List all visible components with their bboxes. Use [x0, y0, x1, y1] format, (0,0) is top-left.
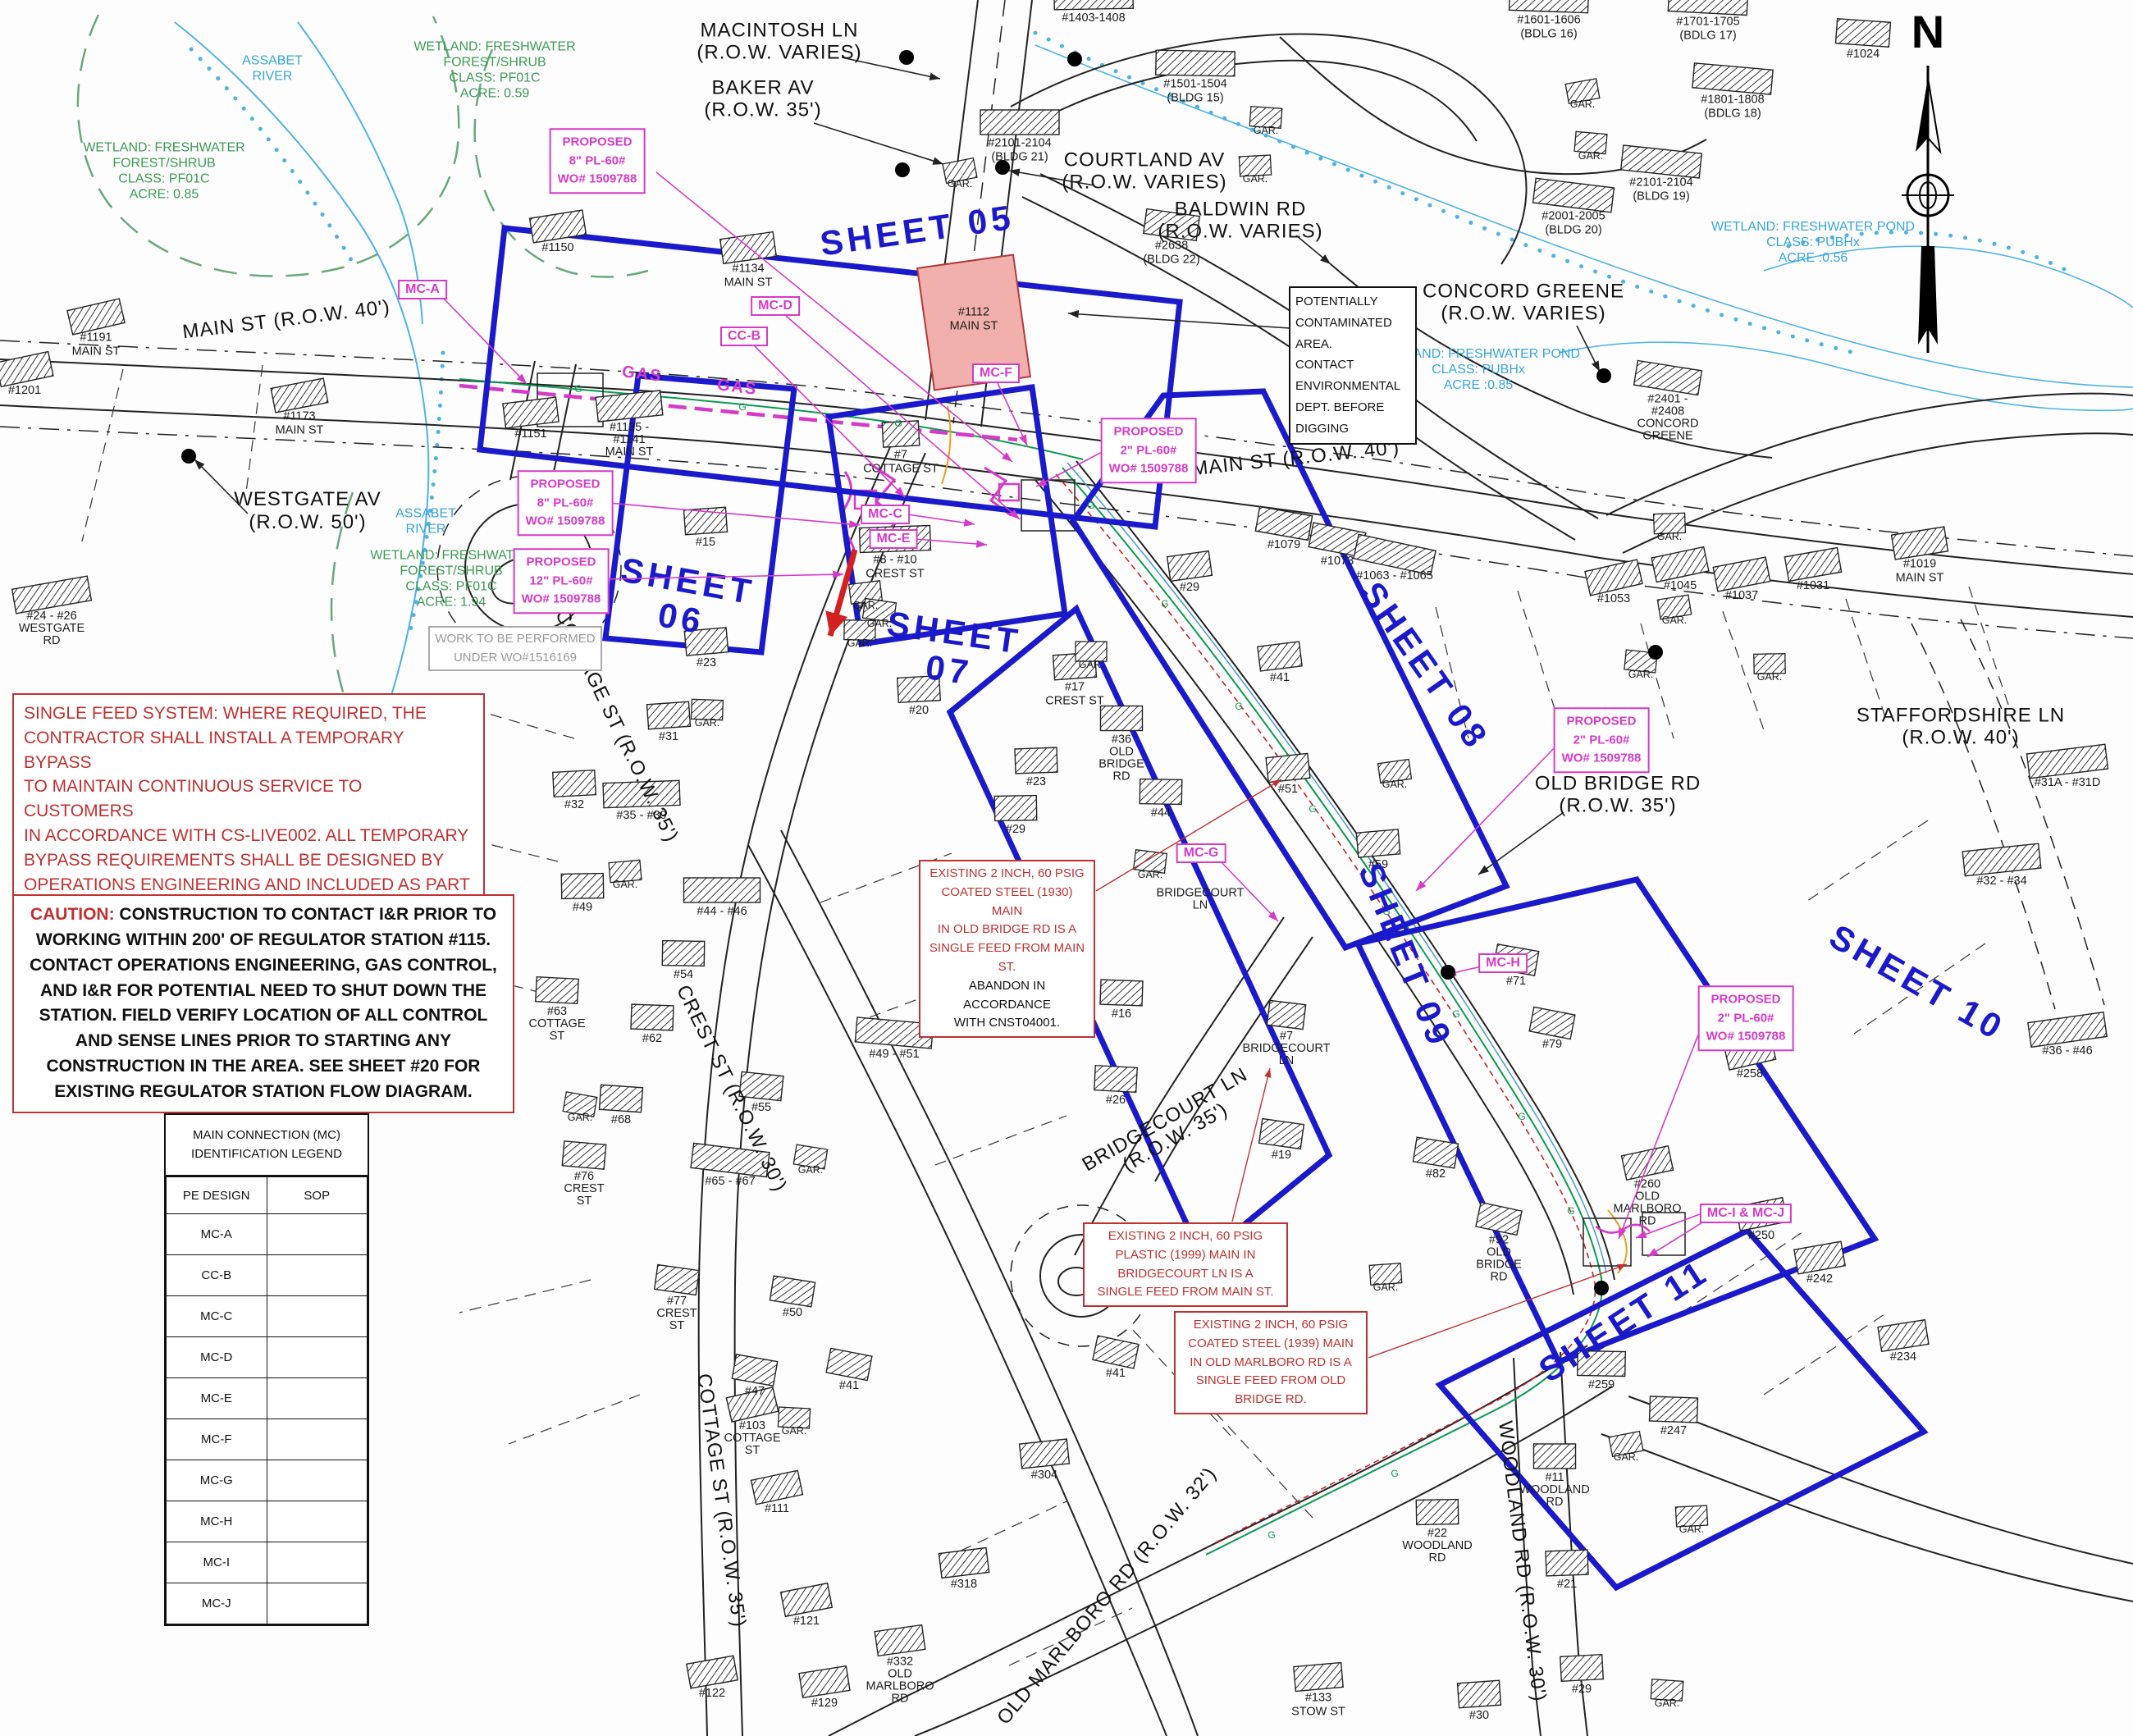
- building: [1476, 1203, 1522, 1236]
- house-labels-text: #7BRIDGECOURTLN: [1243, 1030, 1331, 1067]
- building: [2027, 744, 2108, 778]
- gar-labels-text: GAR.: [1254, 125, 1279, 136]
- street-labels-text: STAFFORDSHIRE LN(R.O.W. 40'): [1857, 705, 2065, 749]
- house-labels-text: #1031: [1797, 579, 1829, 592]
- house-labels-text: #111: [765, 1502, 789, 1515]
- legend-pe-design-cell: MC-A: [167, 1214, 267, 1255]
- legend-row: MC-I: [167, 1542, 368, 1583]
- house-labels-text: #54: [674, 968, 693, 981]
- building: [1560, 1655, 1604, 1682]
- street-labels-text: OLD MARLBORO RD (R.O.W. 32'): [993, 1463, 1221, 1729]
- mc-callout: MC-H: [1478, 953, 1528, 973]
- legend-row: MC-C: [167, 1296, 368, 1337]
- legend-pe-design-cell: MC-J: [167, 1583, 267, 1624]
- mc-callout: CC-B: [720, 327, 768, 346]
- misc-labels-text: GAS: [716, 376, 759, 399]
- leader-line: [1096, 779, 1281, 891]
- legend-sop-cell: [267, 1419, 368, 1460]
- building: [561, 874, 604, 899]
- house-labels-text: #234: [1890, 1350, 1916, 1364]
- leader-line: [1232, 1068, 1270, 1222]
- street-labels-text: CONCORD GREENE(R.O.W. VARIES): [1423, 281, 1624, 325]
- building: [647, 701, 691, 729]
- house-labels-text: #29: [1180, 581, 1199, 594]
- house-labels-text: #21: [1557, 1578, 1577, 1591]
- wetland-labels-text: WETLAND: FRESHWATERFOREST/SHRUBCLASS: PF…: [83, 141, 244, 202]
- house-labels-text: #65 - #67: [705, 1175, 755, 1188]
- house-labels-text: #19: [1272, 1149, 1291, 1162]
- proposed-main-callout: PROPOSED 2" PL-60# WO# 1509788: [1698, 985, 1794, 1051]
- building: [1634, 361, 1702, 395]
- gar-labels-text: GAR.: [1570, 98, 1596, 110]
- house-labels-text: BRIDGECOURTLN: [1157, 887, 1245, 912]
- building: [1140, 779, 1182, 805]
- legend-sop-cell: [267, 1501, 368, 1542]
- gar-labels-text: GAR.: [798, 1164, 824, 1176]
- misc-labels-text: G: [1452, 1008, 1459, 1020]
- junction-dot: [1648, 645, 1663, 660]
- building: [1167, 551, 1213, 582]
- house-labels-text: #1403-1408: [1062, 11, 1125, 25]
- sheet-labels-text: SHEET 08: [1353, 575, 1496, 757]
- work-order-note: WORK TO BE PERFORMED UNDER WO#1516169: [428, 626, 602, 671]
- house-labels-text: #304: [1031, 1469, 1057, 1482]
- leader-line: [609, 503, 860, 525]
- sheet-labels-text: SHEET06: [611, 550, 758, 649]
- legend-sop-cell: [267, 1378, 368, 1419]
- house-labels-text: #36 - #46: [2042, 1044, 2092, 1058]
- building: [1093, 1336, 1139, 1368]
- building: [1668, 0, 1747, 15]
- house-labels-text: #1024: [1847, 48, 1880, 61]
- existing-old-bridge-note: EXISTING 2 INCH, 60 PSIG COATED STEEL (1…: [919, 860, 1095, 1038]
- house-labels-text: #1019MAIN ST: [1896, 558, 1944, 585]
- house-labels-text: #31: [659, 730, 678, 743]
- gar-labels-text: GAR.: [948, 178, 973, 190]
- mc-callout: MC-C: [861, 505, 910, 524]
- misc-labels-text: G: [1267, 1529, 1275, 1541]
- building: [1015, 747, 1057, 774]
- building: [67, 299, 125, 335]
- house-labels-text: #79: [1542, 1038, 1562, 1051]
- house-labels-text: #16: [1112, 1007, 1131, 1021]
- junction-dot: [1067, 52, 1082, 66]
- house-labels-text: #1150: [541, 241, 573, 254]
- street-labels-text: WESTGATE AV(R.O.W. 50'): [234, 488, 381, 533]
- legend-pe-design-cell: MC-E: [167, 1378, 267, 1419]
- legend-row: MC-G: [167, 1460, 368, 1501]
- gar-labels-text: GAR.: [568, 1112, 593, 1123]
- proposed-main-callout: PROPOSED 8" PL-60# WO# 1509788: [518, 470, 614, 536]
- house-labels-text: #2101-2104(BLDG 19): [1629, 176, 1692, 203]
- legend-pe-design-cell: MC-C: [167, 1296, 267, 1337]
- building: [799, 1666, 850, 1698]
- legend-sop-cell: [267, 1214, 368, 1255]
- existing-old-bridge-red: EXISTING 2 INCH, 60 PSIG COATED STEEL (1…: [925, 865, 1089, 977]
- building: [1100, 980, 1143, 1006]
- misc-labels-text: G: [1518, 1111, 1525, 1122]
- misc-labels-text: GAS: [621, 363, 664, 386]
- street-labels-text: BALDWIN RD(R.O.W. VARIES): [1158, 199, 1322, 243]
- building: [1356, 829, 1400, 857]
- building: [826, 1348, 872, 1380]
- legend-col-sop: SOP: [267, 1177, 368, 1214]
- house-labels-text: #11WOODLANDRD: [1519, 1471, 1589, 1509]
- leader-line: [842, 57, 940, 79]
- building: [2028, 1012, 2107, 1048]
- contaminated-area-note: POTENTIALLY CONTAMINATED AREA. CONTACT E…: [1289, 286, 1417, 445]
- building: [751, 1470, 803, 1504]
- gar-labels-text: GAR.: [1373, 1281, 1399, 1293]
- building: [536, 977, 579, 1004]
- house-labels-text: #32 - #34: [1976, 875, 2026, 888]
- house-labels-text: #76CRESTST: [564, 1170, 604, 1208]
- misc-labels-text: G: [738, 401, 746, 413]
- building: [1621, 145, 1702, 178]
- house-labels-text: #1201: [8, 384, 41, 397]
- street-labels-text: COURTLAND AV(R.O.W. VARIES): [1062, 149, 1226, 194]
- building: [781, 1583, 833, 1617]
- proposed-main-callout: PROPOSED 2" PL-60# WO# 1509788: [1554, 707, 1650, 773]
- gar-labels-text: GAR.: [1243, 173, 1268, 185]
- legend-title: MAIN CONNECTION (MC) IDENTIFICATION LEGE…: [166, 1115, 368, 1176]
- gar-labels-text: GAR.: [1655, 1697, 1680, 1709]
- gar-labels-text: GAR.: [1614, 1451, 1639, 1463]
- building: [600, 1085, 643, 1112]
- house-labels-text: #2101-2104(BLDG 21): [988, 137, 1051, 164]
- building: [1533, 178, 1615, 212]
- misc-labels-text: N: [1911, 6, 1944, 57]
- building: [12, 576, 92, 614]
- existing-bridgecourt-note: EXISTING 2 INCH, 60 PSIG PLASTIC (1999) …: [1083, 1222, 1288, 1307]
- wetland-labels-text: WETLAND: FRESHWATERFOREST/SHRUBCLASS: PF…: [370, 549, 532, 610]
- house-labels-text: #44 - #46: [697, 905, 747, 918]
- building: [1529, 1007, 1575, 1039]
- gar-labels-text: GAR.: [847, 637, 873, 649]
- gar-labels-text: GAR.: [613, 879, 638, 890]
- gar-labels-text: GAR.: [1628, 669, 1654, 680]
- house-labels-text: #41: [1106, 1367, 1126, 1380]
- building: [503, 397, 559, 428]
- house-labels-text: #1173MAIN ST: [276, 410, 324, 437]
- house-labels-text: #258: [1737, 1067, 1763, 1080]
- legend-row: MC-D: [167, 1337, 368, 1378]
- street-labels-text: MACINTOSH LN(R.O.W. VARIES): [697, 20, 861, 64]
- leader-line: [1478, 812, 1564, 875]
- building: [770, 1276, 815, 1307]
- sheet-labels-text: SHEET 05: [818, 198, 1017, 263]
- existing-old-marlboro-note: EXISTING 2 INCH, 60 PSIG COATED STEEL (1…: [1174, 1311, 1368, 1414]
- house-labels-text: #24 - #26WESTGATERD: [19, 610, 85, 647]
- house-labels-text: #247: [1660, 1424, 1687, 1437]
- misc-labels-text: G: [894, 418, 902, 429]
- house-labels-text: #1151: [514, 427, 546, 441]
- house-labels-text: #1501-1504(BLDG 15): [1163, 78, 1226, 105]
- junction-dot: [995, 160, 1010, 175]
- building: [271, 378, 328, 413]
- building: [655, 1265, 700, 1295]
- legend-sop-cell: [267, 1460, 368, 1501]
- junction-dot: [1594, 1281, 1609, 1295]
- house-labels-text: #77CRESTST: [656, 1295, 697, 1332]
- legend-pe-design-cell: MC-D: [167, 1337, 267, 1378]
- gar-labels-text: GAR.: [1138, 869, 1163, 880]
- house-labels-text: #15: [696, 536, 715, 549]
- building: [1054, 0, 1134, 10]
- junction-dot: [899, 50, 914, 65]
- legend-sop-cell: [267, 1337, 368, 1378]
- building: [1020, 1439, 1070, 1469]
- gar-labels-text: GAR.: [1578, 150, 1604, 162]
- leader-line: [194, 459, 248, 514]
- building: [1622, 1146, 1674, 1180]
- house-labels-text: #1063 - #1065: [1356, 569, 1433, 582]
- legend-pe-design-cell: MC-G: [167, 1460, 267, 1501]
- building: [0, 352, 53, 387]
- house-labels-text: #122: [699, 1687, 725, 1700]
- legend-pe-design-cell: MC-H: [167, 1501, 267, 1542]
- house-labels-text: #7COTTAGE ST: [863, 449, 939, 476]
- gar-labels-text: GAR.: [853, 600, 879, 611]
- house-labels-text: #17CREST ST: [1045, 681, 1104, 708]
- house-labels-text: #250: [1748, 1229, 1774, 1242]
- house-labels-text: #129: [811, 1697, 838, 1710]
- building: [1585, 560, 1642, 596]
- house-labels-text: #23: [1026, 775, 1046, 788]
- misc-labels-text: G: [1391, 1468, 1398, 1479]
- legend-sop-cell: [267, 1255, 368, 1296]
- leader-line: [1647, 1220, 1706, 1257]
- house-labels-text: #1801-1808(BDLG 18): [1701, 94, 1764, 121]
- house-labels-text: #29: [1572, 1683, 1592, 1696]
- proposed-main-callout: PROPOSED 8" PL-60# WO# 1509788: [550, 128, 646, 194]
- house-labels-text: #8 - #10CREST ST: [866, 554, 925, 581]
- street-labels-text: MAIN ST (R.O.W. 40'): [181, 296, 391, 344]
- mc-callout: MC-E: [870, 529, 918, 549]
- legend-pe-design-cell: MC-I: [167, 1542, 267, 1583]
- gar-labels-text: GAR.: [1757, 671, 1783, 683]
- house-labels-text: #26: [1106, 1094, 1126, 1107]
- legend-row: MC-E: [167, 1378, 368, 1419]
- house-labels-text: #63COTTAGEST: [528, 1005, 585, 1043]
- building: [1534, 1444, 1576, 1469]
- north-arrow: [1902, 66, 1954, 353]
- house-labels-text: #1079: [1267, 538, 1300, 551]
- house-labels-text: #1601-1606(BDLG 16): [1517, 14, 1580, 41]
- sheet-labels-text: SHEET 10: [1823, 916, 2012, 1048]
- house-labels-text: #30: [1469, 1709, 1489, 1722]
- house-labels-text: #32: [564, 798, 584, 811]
- gas-work-cluster: [537, 373, 1685, 1266]
- wetland-labels-text: WETLAND: FRESHWATERFOREST/SHRUBCLASS: PF…: [413, 40, 575, 101]
- building: [1649, 1396, 1697, 1423]
- building: [1546, 1550, 1588, 1576]
- legend-row: CC-B: [167, 1255, 368, 1296]
- legend-table: PE DESIGN SOP MC-ACC-BMC-CMC-DMC-EMC-FMC…: [166, 1176, 368, 1624]
- building: [687, 1656, 738, 1688]
- building: [553, 770, 596, 797]
- mc-callout: MC-I & MC-J: [1700, 1204, 1792, 1223]
- house-labels-text: #1134MAIN ST: [724, 263, 773, 290]
- house-labels-text: #49: [573, 901, 592, 914]
- gar-labels-text: GAR.: [1662, 614, 1688, 626]
- junction-dot: [895, 162, 910, 177]
- gar-labels-text: GAR.: [782, 1425, 807, 1437]
- building: [939, 1548, 989, 1578]
- house-labels-text: #1073: [1321, 555, 1354, 568]
- building: [1258, 642, 1302, 671]
- building: [980, 110, 1059, 135]
- building: [1692, 63, 1773, 94]
- building: [1794, 1241, 1845, 1274]
- house-labels-text: #332OLDMARLBORORD: [866, 1656, 934, 1706]
- house-labels-text: #2401 -#2408CONCORDGREENE: [1637, 393, 1699, 443]
- legend-pe-design-cell: CC-B: [167, 1255, 267, 1296]
- building: [1962, 843, 2041, 876]
- misc-labels-text: G: [1161, 598, 1168, 610]
- proposed-main-callout: PROPOSED 2" PL-60# WO# 1509788: [1101, 418, 1197, 483]
- house-labels-text: #31A - #31D: [2035, 776, 2101, 789]
- legend-row: MC-F: [167, 1419, 368, 1460]
- house-labels-text: #29: [1006, 823, 1025, 836]
- building: [662, 941, 705, 966]
- mc-identification-legend: MAIN CONNECTION (MC) IDENTIFICATION LEGE…: [164, 1113, 369, 1626]
- legend-sop-cell: [267, 1583, 368, 1624]
- building: [1259, 1119, 1304, 1149]
- building: [732, 1355, 777, 1386]
- existing-old-bridge-black: ABANDON IN ACCORDANCE WITH CNST04001.: [925, 977, 1089, 1033]
- building: [1878, 1320, 1929, 1352]
- junction-dot: [1441, 965, 1455, 980]
- legend-pe-design-cell: MC-F: [167, 1419, 267, 1460]
- mc-callout: MC-F: [972, 363, 1020, 383]
- caution-note: CAUTION: CONSTRUCTION TO CONTACT I&R PRI…: [12, 894, 514, 1113]
- house-labels-text: #71: [1506, 975, 1526, 988]
- house-labels-text: #82: [1426, 1167, 1446, 1181]
- house-labels-text: #51: [1278, 783, 1298, 796]
- legend-col-pe-design: PE DESIGN: [167, 1177, 267, 1214]
- mc-callout: MC-D: [751, 296, 800, 316]
- house-labels-text: #259: [1588, 1378, 1615, 1391]
- building: [875, 1625, 925, 1656]
- house-labels-text: #1701-1705(BDLG 17): [1676, 16, 1739, 43]
- house-labels-text: #41: [839, 1379, 859, 1392]
- gar-labels-text: GAR.: [1679, 1524, 1705, 1535]
- house-labels-text: #62: [642, 1032, 662, 1045]
- building: [1267, 1000, 1305, 1029]
- proposed-main-callout: PROPOSED 12" PL-60# WO# 1509788: [514, 548, 610, 614]
- misc-labels-text: G: [574, 383, 582, 395]
- building: [1651, 547, 1709, 582]
- gar-labels-text: GAR.: [1382, 779, 1408, 790]
- building: [1101, 706, 1143, 731]
- mc-callout: MC-A: [398, 280, 447, 299]
- building: [1266, 753, 1310, 782]
- misc-labels-text: G: [1235, 701, 1242, 712]
- junction-dot: [1596, 368, 1611, 383]
- house-labels-text: #260OLDMARLBORORD: [1614, 1178, 1682, 1228]
- house-labels-text: #103COTTAGEST: [724, 1419, 780, 1457]
- house-labels-text: #1045: [1664, 579, 1697, 592]
- leader-line: [907, 514, 975, 524]
- house-labels-text: #68: [611, 1113, 631, 1126]
- building: [1458, 1680, 1501, 1707]
- house-labels-text: #1053: [1597, 592, 1630, 605]
- house-labels-text: #20: [909, 704, 929, 717]
- misc-labels-text: G: [1567, 1205, 1574, 1217]
- caution-text: CONSTRUCTION TO CONTACT I&R PRIOR TO WOR…: [30, 905, 497, 1101]
- misc-labels-text: G: [1087, 500, 1094, 511]
- sheet-labels-text: SHEET 09: [1351, 857, 1460, 1053]
- house-labels-text: #23: [697, 656, 716, 669]
- building: [1784, 548, 1841, 582]
- building: [1156, 50, 1235, 76]
- misc-labels-text: G: [1309, 803, 1316, 815]
- house-labels-text: #22WOODLANDRD: [1402, 1527, 1472, 1565]
- construction-key-map: GAR.GAR.GAR.GAR.GAR.GAR.GAR.GAR.GAR.GAR.…: [0, 0, 2133, 1736]
- house-labels-text: #47: [745, 1385, 765, 1398]
- house-labels-text: #2638(BLDG 22): [1143, 240, 1199, 267]
- building: [1416, 1500, 1459, 1525]
- building: [596, 391, 663, 422]
- building: [1094, 1066, 1138, 1093]
- house-labels-text: #1037: [1725, 589, 1758, 602]
- street-labels-text: BAKER AV(R.O.W. 35'): [704, 77, 821, 121]
- gar-labels-text: GAR.: [1079, 659, 1104, 670]
- leader-line: [814, 123, 943, 164]
- legend-row: MC-H: [167, 1501, 368, 1542]
- leader-line: [443, 298, 527, 384]
- house-labels-text: #1135 -#1141MAIN ST: [605, 421, 654, 459]
- house-labels-text: #121: [793, 1615, 820, 1628]
- building: [562, 1141, 605, 1169]
- house-labels-text: #44: [1151, 806, 1171, 820]
- building: [684, 878, 760, 902]
- legend-row: MC-A: [167, 1214, 368, 1255]
- legend-row: MC-J: [167, 1583, 368, 1624]
- caution-prefix: CAUTION:: [30, 905, 115, 924]
- junction-dot: [181, 449, 196, 464]
- wetland-labels-text: ASSABETRIVER: [242, 54, 303, 84]
- wetland-labels-text: WETLAND: FRESHWATER PONDCLASS: PUBHxACRE…: [1711, 220, 1915, 265]
- gar-labels-text: GAR.: [695, 717, 720, 729]
- house-labels-text: #1191MAIN ST: [72, 331, 121, 359]
- building: [631, 1004, 674, 1030]
- building: [1510, 0, 1589, 13]
- gar-labels-text: GAR.: [1657, 531, 1683, 542]
- house-labels-text: #2001-2005(BLDG 20): [1542, 210, 1605, 237]
- mc-callout: MC-G: [1176, 843, 1226, 863]
- building: [1713, 557, 1770, 592]
- house-labels-text: #49 - #51: [869, 1048, 919, 1061]
- building: [1836, 19, 1891, 47]
- house-labels-text: #318: [951, 1578, 977, 1591]
- legend-sop-cell: [267, 1542, 368, 1583]
- house-labels-text: #41: [1270, 671, 1290, 684]
- building: [1294, 1663, 1343, 1692]
- street-labels-text: OLD BRIDGE RD(R.O.W. 35'): [1535, 773, 1701, 817]
- house-labels-text: #50: [783, 1306, 802, 1319]
- house-labels-text: #242: [1806, 1272, 1833, 1286]
- building: [994, 796, 1037, 821]
- legend-sop-cell: [267, 1296, 368, 1337]
- house-labels-text: #133STOW ST: [1291, 1692, 1345, 1719]
